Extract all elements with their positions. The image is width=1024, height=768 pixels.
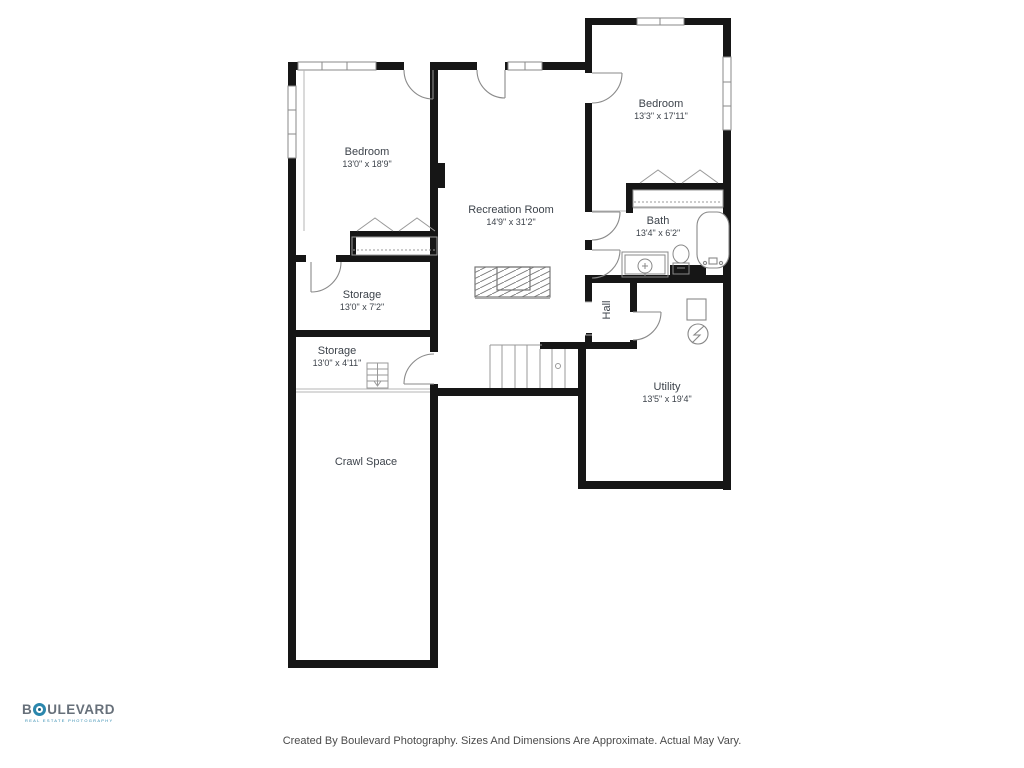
logo-text-suffix: ULEVARD [47,702,115,717]
logo-lens-icon [33,703,46,716]
room-dimensions: 13'0" x 18'9" [342,159,391,171]
boulevard-logo: B ULEVARD REAL ESTATE PHOTOGRAPHY [22,702,115,723]
door-hall-utility [633,312,661,340]
door-bath-upper [592,212,620,240]
logo-tagline: REAL ESTATE PHOTOGRAPHY [25,718,115,723]
room-label-storage-upper: Storage 13'0" x 7'2" [340,288,384,314]
room-name: Recreation Room [468,203,554,217]
water-heater-icon [688,324,708,344]
room-label-crawl-space: Crawl Space [335,455,397,469]
room-label-hall: Hall [600,301,614,320]
window-bedroom-left-side [288,86,296,158]
disclaimer-text: Created By Boulevard Photography. Sizes … [0,735,1024,747]
door-bedroom-right [592,73,622,103]
crawl-space-divider [296,389,430,392]
room-name: Crawl Space [335,455,397,469]
closet-bedroom-left [352,218,437,255]
attic-steps-icon [367,363,388,388]
room-dimensions: 14'9" x 31'2" [468,217,554,229]
floor-plan-drawing [0,0,1024,768]
electrical-panel-icon [687,299,706,320]
room-dimensions: 13'3" x 17'11" [634,111,688,123]
room-dimensions: 13'5" x 19'4" [642,394,691,406]
room-name: Bedroom [634,97,688,111]
chimney-hatch [475,267,550,298]
room-name: Bedroom [342,145,391,159]
door-bath-lower [592,250,620,278]
room-label-bedroom-right: Bedroom 13'3" x 17'11" [634,97,688,123]
room-name: Utility [642,380,691,394]
room-label-storage-lower: Storage 13'0" x 4'11" [313,344,362,370]
room-dimensions: 13'0" x 7'2" [340,302,384,314]
room-name: Hall [600,301,614,320]
logo-text-prefix: B [22,702,32,717]
window-bedroom-right-top [637,18,684,25]
door-storage-upper [311,262,341,292]
room-name: Storage [313,344,362,358]
room-label-recreation: Recreation Room 14'9" x 31'2" [468,203,554,229]
room-label-utility: Utility 13'5" x 19'4" [642,380,691,406]
door-rec-room [477,70,505,98]
staircase [490,345,565,388]
door-storage-lower [404,354,434,384]
window-rec-room-top [508,62,542,70]
window-bedroom-right-side [723,57,731,130]
room-name: Bath [636,214,680,228]
room-label-bedroom-left: Bedroom 13'0" x 18'9" [342,145,391,171]
room-name: Storage [340,288,384,302]
windows [288,18,731,158]
room-label-bath: Bath 13'4" x 6'2" [636,214,680,240]
room-dimensions: 13'4" x 6'2" [636,228,680,240]
bathtub [697,212,729,268]
door-bedroom-left [404,70,433,99]
window-bedroom-left-top [298,62,376,70]
vanity-sink [622,252,668,277]
room-dimensions: 13'0" x 4'11" [313,358,362,370]
floor-plan-page: Bedroom 13'0" x 18'9" Bedroom 13'3" x 17… [0,0,1024,768]
